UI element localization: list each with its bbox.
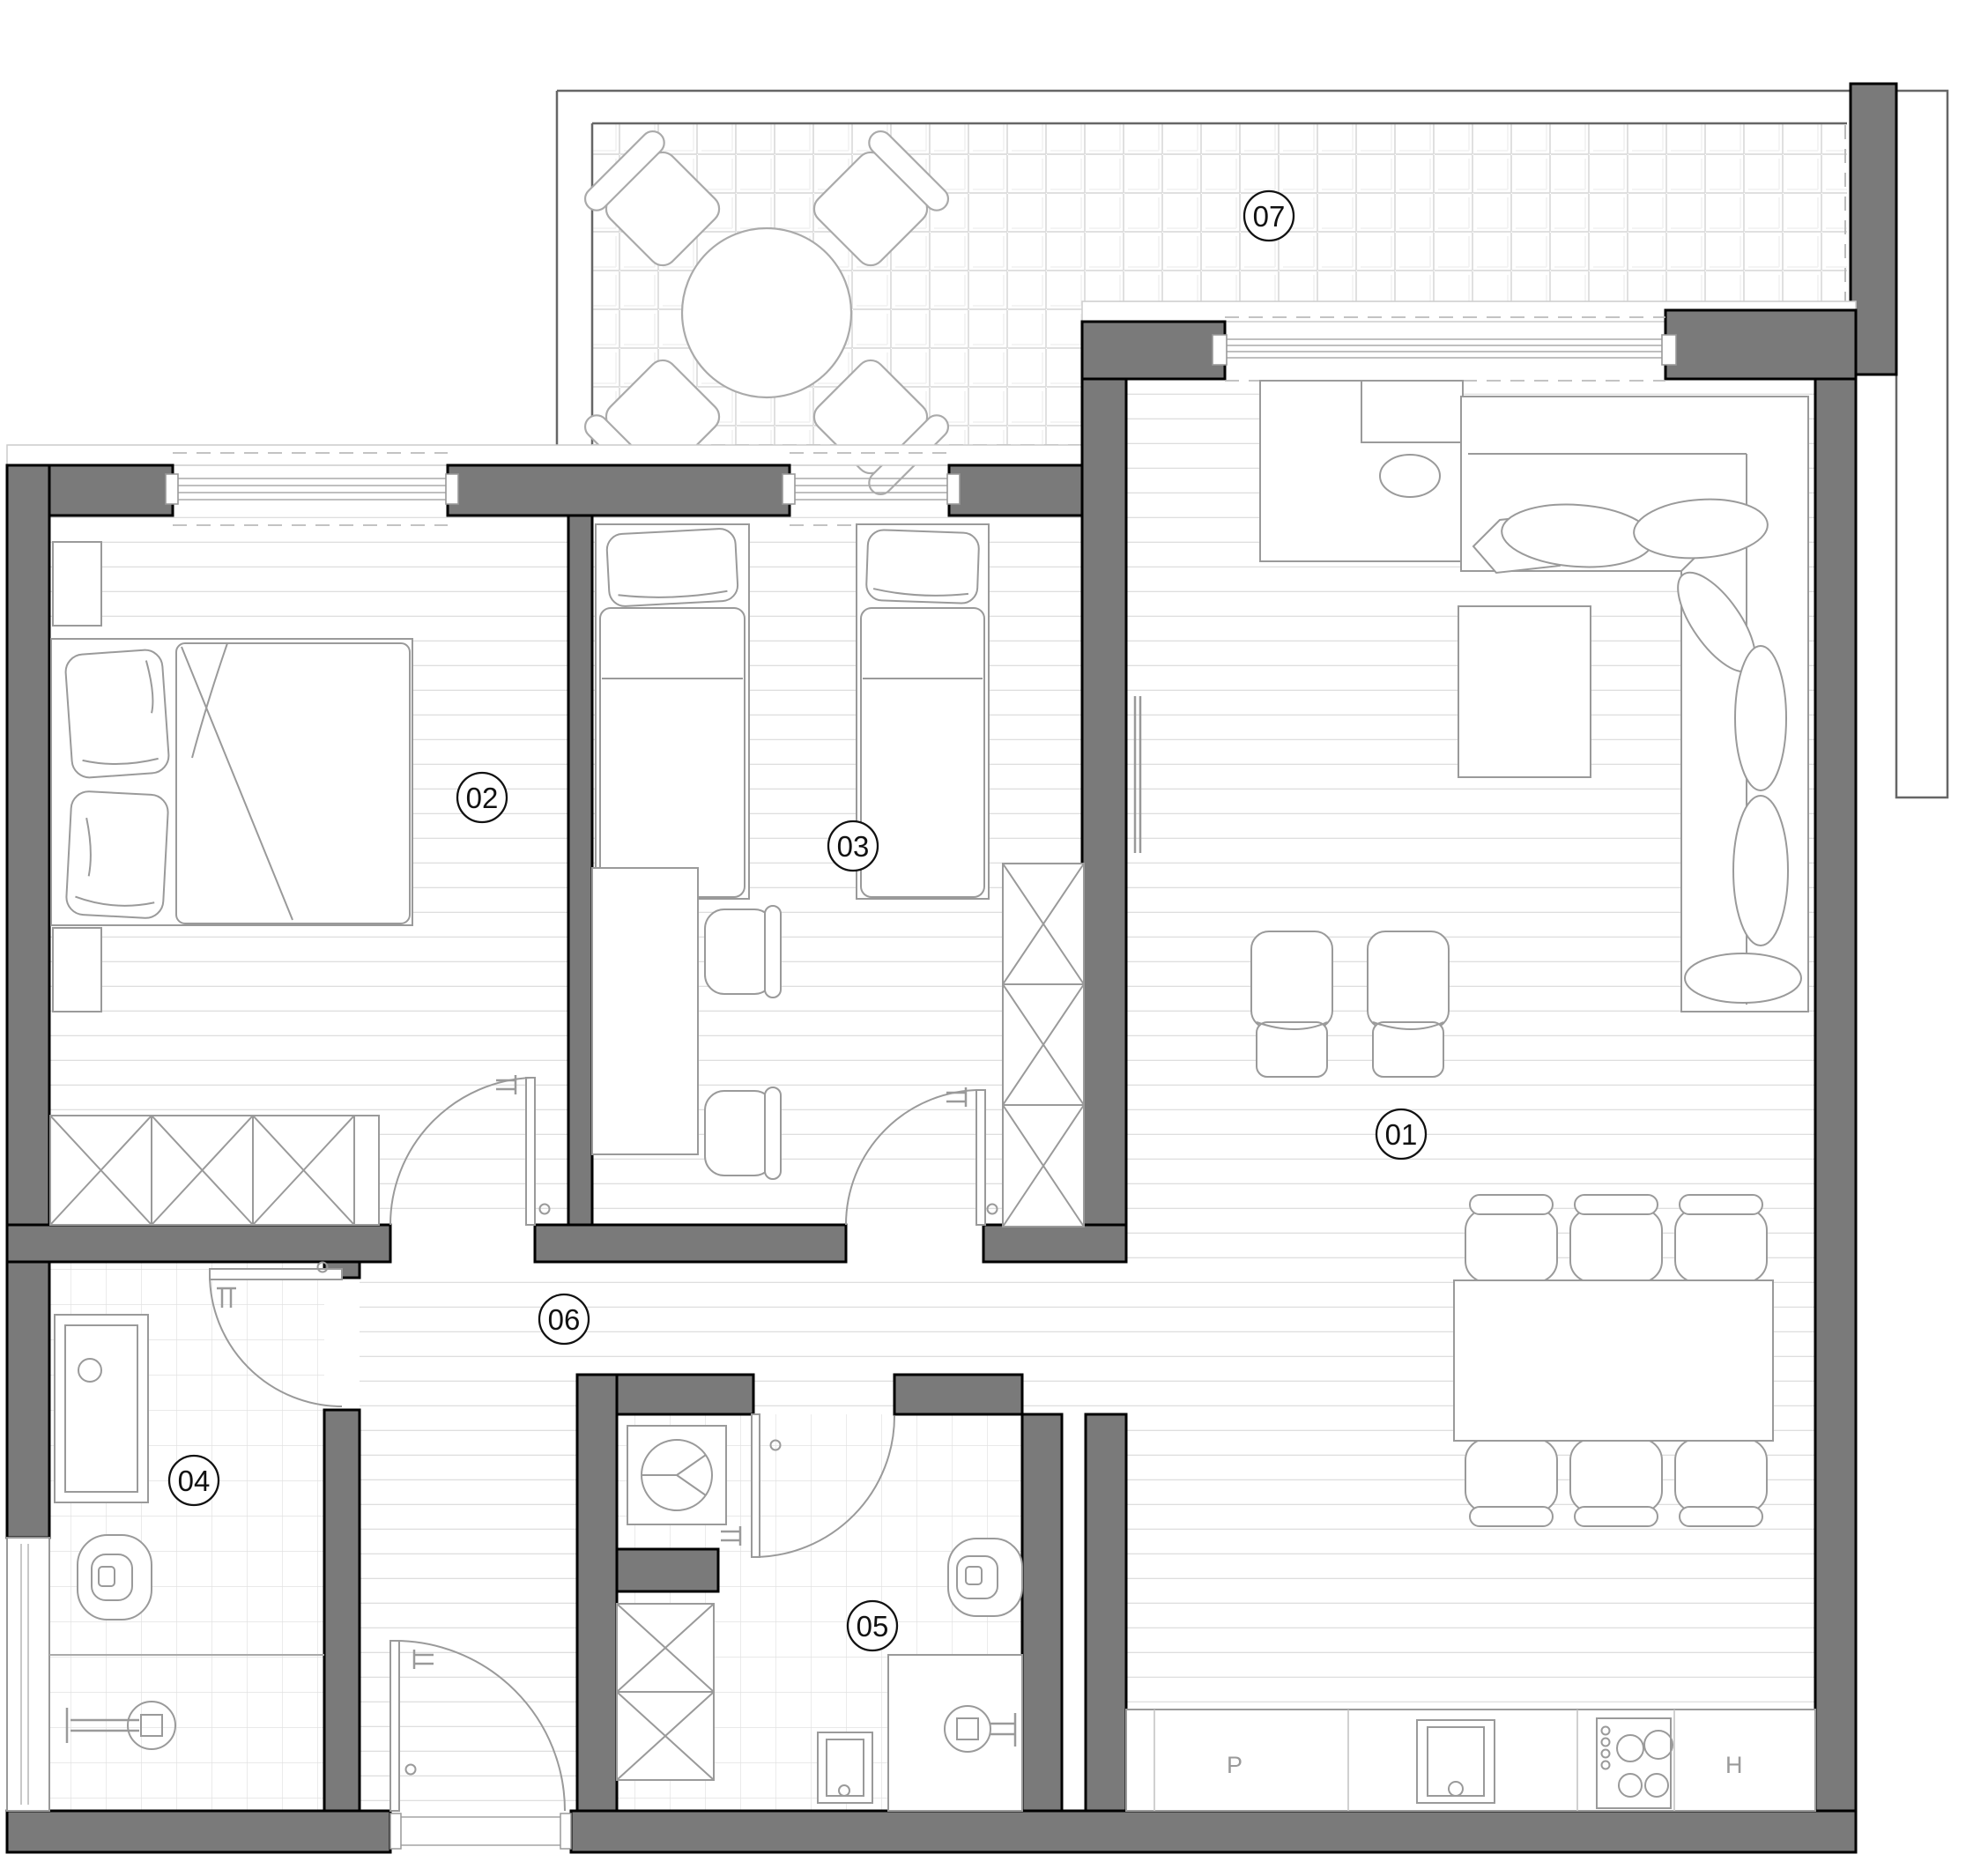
basin: [818, 1732, 872, 1803]
wall-04-right-bottom: [324, 1410, 360, 1811]
window-bathroom-04: [7, 1538, 49, 1811]
fridge-label: H: [1725, 1752, 1743, 1778]
nightstand: [53, 542, 101, 626]
wall-05-top-left: [617, 1375, 753, 1414]
wall-hall-c: [983, 1225, 1126, 1262]
svg-text:05: 05: [857, 1610, 889, 1643]
dining-chair: [1465, 1439, 1557, 1526]
svg-text:07: 07: [1253, 200, 1286, 233]
dining-chair: [1570, 1195, 1662, 1282]
dining-chair: [1570, 1439, 1662, 1526]
bedroom-02: [50, 542, 412, 1225]
vanity-sink: [55, 1315, 148, 1502]
dishwasher-label: P: [1227, 1752, 1242, 1778]
toilet: [948, 1539, 1022, 1616]
wall-top-mid: [448, 465, 790, 515]
kitchen: P H: [1126, 1710, 1815, 1811]
closet-x: [617, 1604, 714, 1780]
wall-03-01: [1082, 379, 1126, 1262]
wall-shaft: [1086, 1414, 1126, 1811]
shower: [888, 1655, 1022, 1811]
neighbor-wall-block: [1851, 84, 1896, 375]
double-bed: [51, 639, 412, 925]
dining-table: [1454, 1280, 1773, 1441]
wall-hall-b: [535, 1225, 846, 1262]
single-bed: [596, 524, 749, 899]
armchair: [1368, 931, 1449, 1077]
dining-chair: [1675, 1439, 1767, 1526]
room-label-02: 02: [457, 773, 507, 822]
wall-top-right: [949, 465, 1084, 515]
tv-console: [1260, 381, 1463, 561]
wall-02-03: [568, 515, 592, 1225]
wall-living-top-left: [1082, 322, 1225, 379]
dining-set: [1454, 1195, 1773, 1526]
dining-chair: [1675, 1195, 1767, 1282]
room-label-04: 04: [169, 1456, 219, 1505]
entrance-threshold: [390, 1813, 571, 1849]
wardrobe-03: [1003, 864, 1084, 1227]
wall-bottom-left: [7, 1811, 390, 1852]
wall-05-right: [1022, 1414, 1062, 1811]
wall-vestibule-right: [577, 1375, 617, 1811]
washing-machine: [627, 1426, 726, 1524]
window-living-sliding: [1213, 317, 1676, 381]
dining-chair: [1465, 1195, 1557, 1282]
room-label-07: 07: [1244, 191, 1294, 241]
room-label-06: 06: [539, 1294, 589, 1344]
terrace-round-table: [682, 228, 851, 397]
svg-text:02: 02: [466, 782, 499, 814]
nightstand: [53, 928, 101, 1012]
armchair: [1251, 931, 1332, 1077]
pillow: [64, 649, 169, 778]
svg-text:04: 04: [178, 1465, 211, 1497]
coffee-table: [1458, 606, 1591, 777]
wall-hall-a: [7, 1225, 390, 1262]
pillow: [65, 790, 168, 919]
wall-right: [1815, 310, 1856, 1811]
svg-text:01: 01: [1385, 1118, 1418, 1151]
wall-bottom-right: [571, 1811, 1856, 1852]
svg-text:03: 03: [837, 830, 870, 863]
wall-living-top-right: [1665, 310, 1856, 379]
toilet: [78, 1535, 152, 1620]
desk-chair: [705, 906, 781, 998]
floor-plan-drawing: P H: [0, 0, 1988, 1869]
room-label-01: 01: [1376, 1109, 1426, 1159]
room-label-03: 03: [828, 821, 878, 871]
wall-left: [7, 465, 49, 1538]
wall-niche-step: [617, 1549, 718, 1591]
room-label-05: 05: [848, 1601, 897, 1650]
svg-text:06: 06: [548, 1303, 581, 1336]
wall-05-top-right: [894, 1375, 1022, 1414]
floor-plan-page: P H: [0, 0, 1988, 1869]
desk-chair: [705, 1087, 781, 1179]
wardrobe-02: [50, 1116, 379, 1225]
desk: [592, 868, 698, 1154]
